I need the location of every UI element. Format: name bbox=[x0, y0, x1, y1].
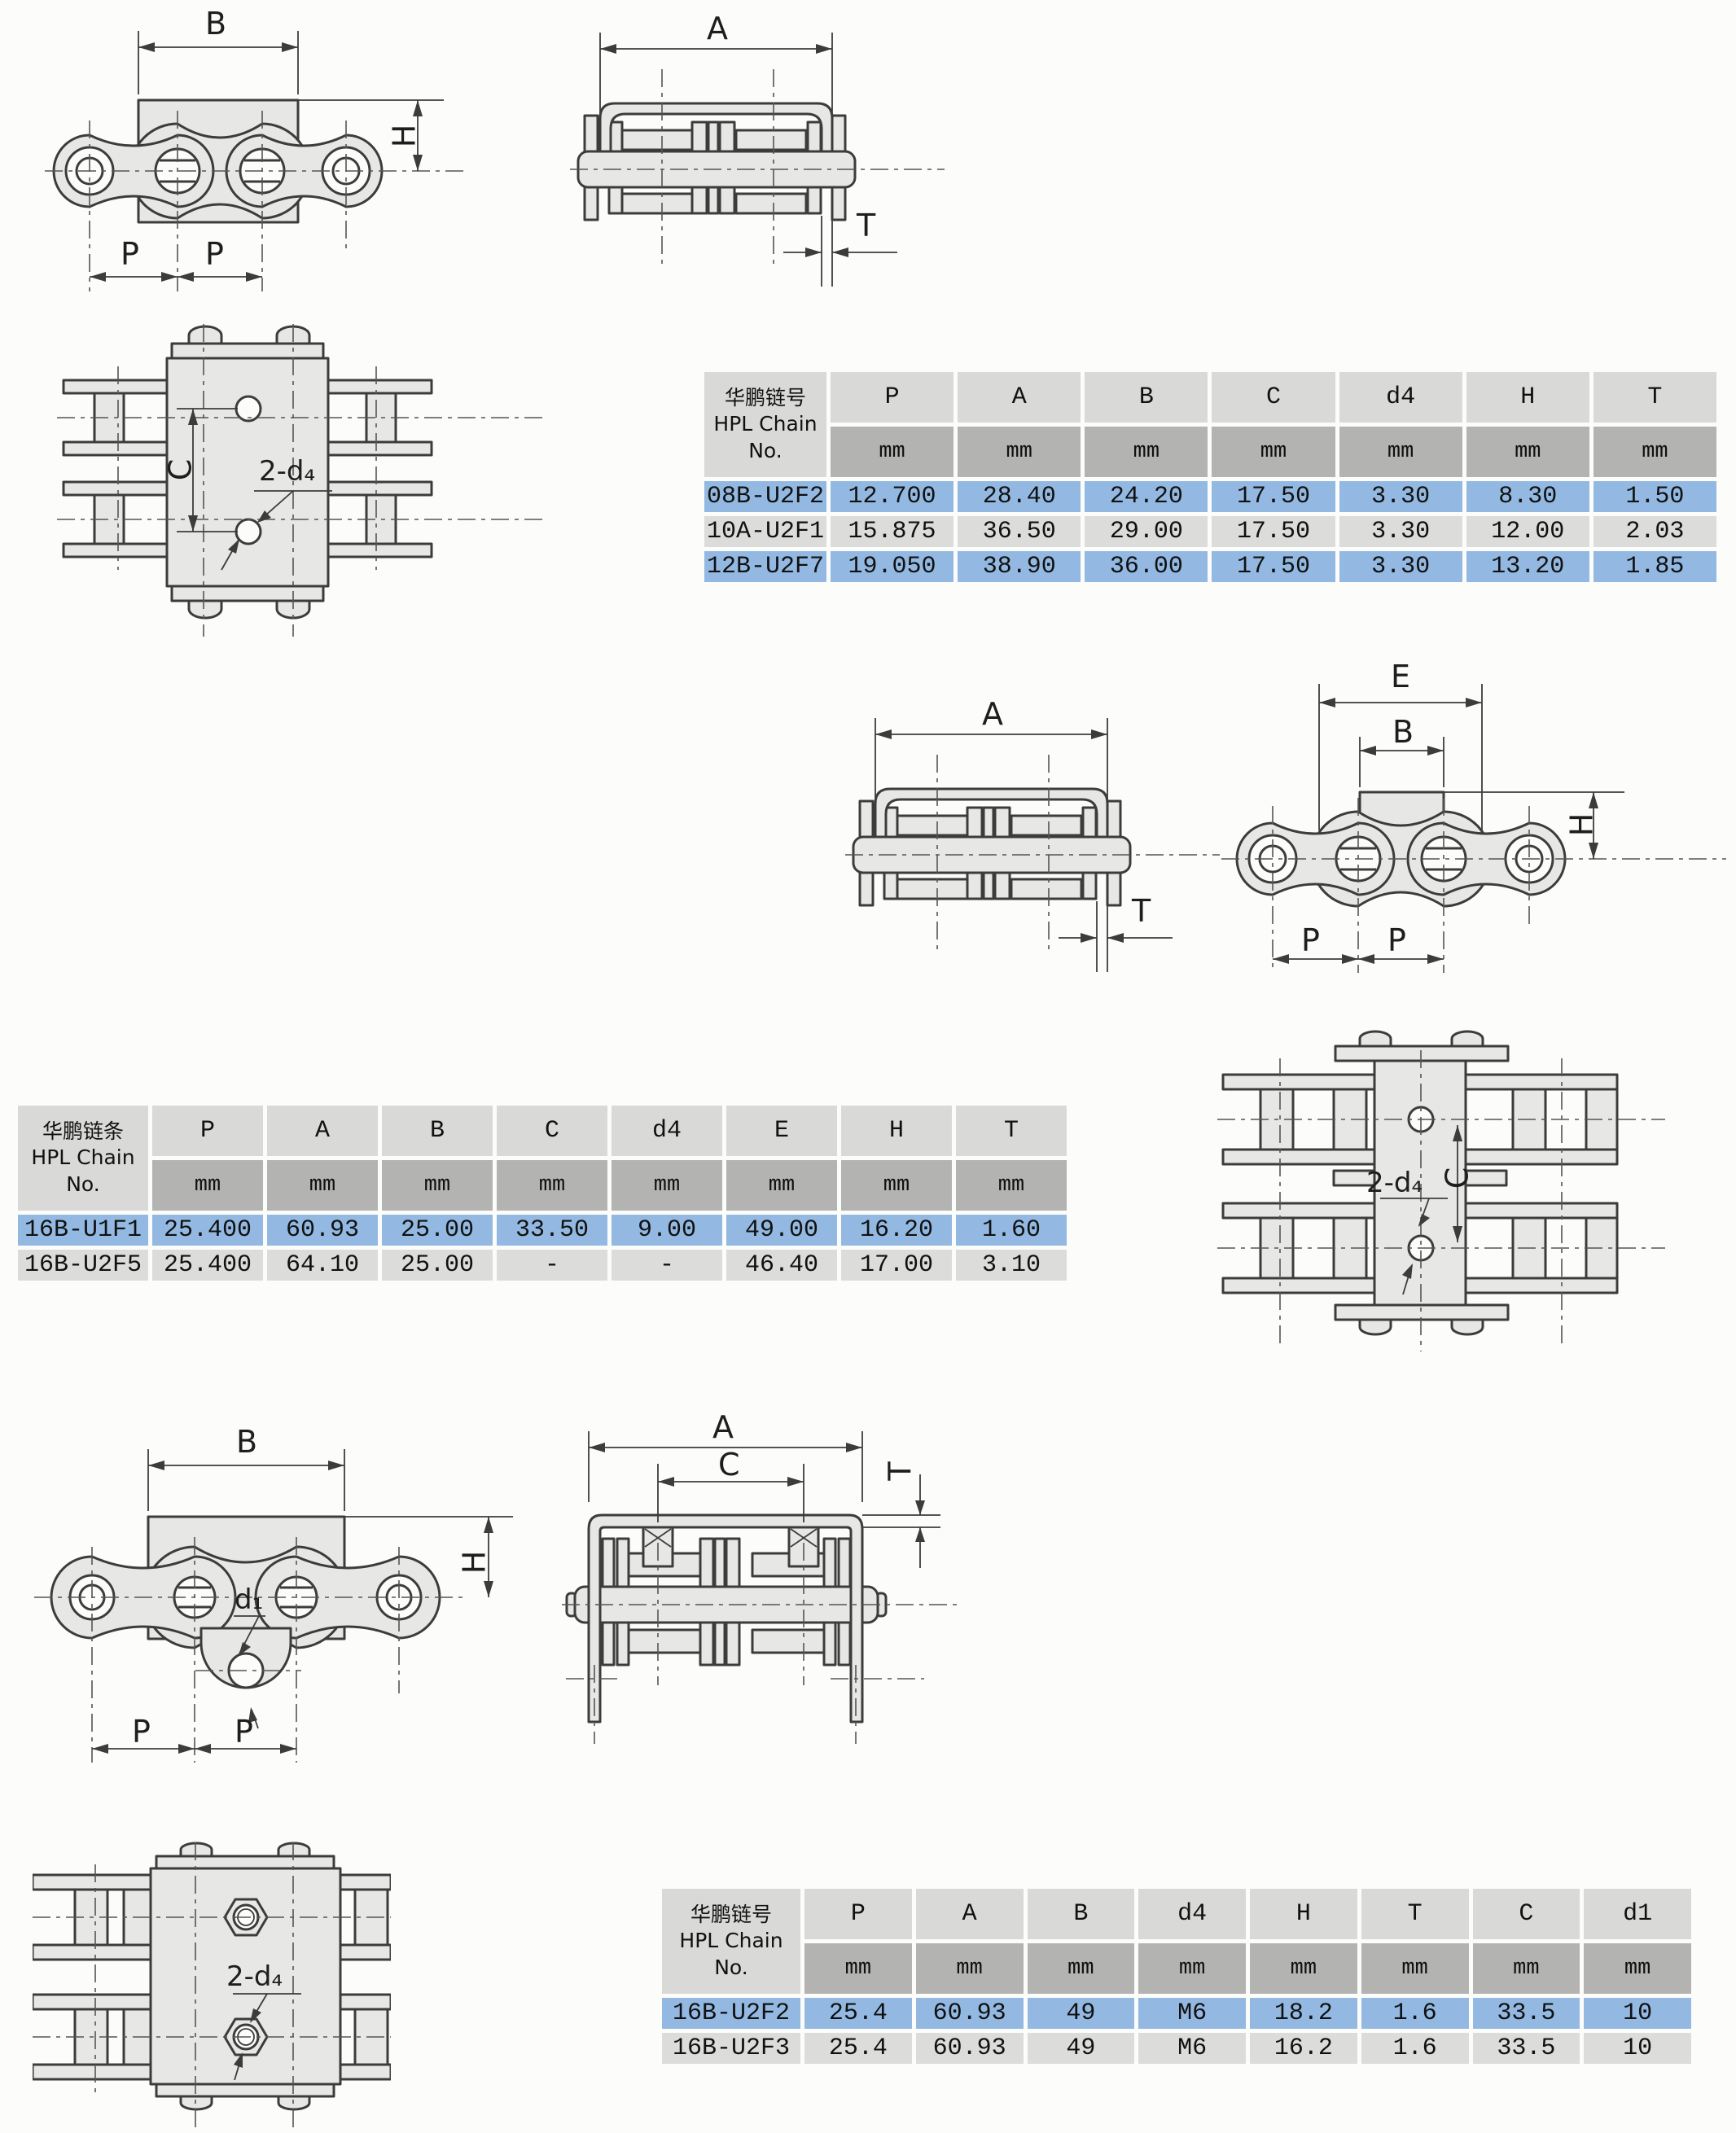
value-cell: 25.400 bbox=[152, 1215, 263, 1246]
unit-cell: mm bbox=[1085, 427, 1208, 477]
unit-cell: mm bbox=[1028, 1943, 1135, 1994]
column-header: d4 bbox=[1339, 372, 1462, 423]
dim-label-p1: P bbox=[1301, 925, 1320, 956]
dim-label-a: A bbox=[982, 699, 1003, 729]
value-cell: 17.00 bbox=[841, 1250, 952, 1281]
table-corner-header: 华鹏链号HPL ChainNo. bbox=[704, 372, 826, 477]
column-header: d4 bbox=[612, 1106, 722, 1156]
value-cell: 25.400 bbox=[152, 1250, 263, 1281]
chain-geometry bbox=[578, 103, 855, 220]
dim-label-2-d4: 2-d₄ bbox=[1366, 1169, 1423, 1197]
corner-line: No. bbox=[18, 1172, 148, 1198]
unit-cell: mm bbox=[1212, 427, 1335, 477]
chain-no-cell: 16B-U2F5 bbox=[18, 1250, 148, 1281]
corner-line: HPL Chain bbox=[704, 411, 826, 438]
dim-label-p1: P bbox=[121, 239, 139, 269]
side-view-svg bbox=[24, 1425, 554, 1775]
value-cell: 9.00 bbox=[612, 1215, 722, 1246]
dim-label-t: T bbox=[885, 1461, 916, 1480]
value-cell: 12.700 bbox=[831, 481, 953, 512]
value-cell: 33.50 bbox=[497, 1215, 607, 1246]
column-header: C bbox=[497, 1106, 607, 1156]
table-row: 16B-U2F225.460.9349M618.21.633.510 bbox=[662, 1998, 1691, 2029]
column-header: C bbox=[1473, 1889, 1580, 1939]
value-cell: 36.50 bbox=[958, 516, 1081, 547]
value-cell: 33.5 bbox=[1473, 1998, 1580, 2029]
column-header: d4 bbox=[1138, 1889, 1246, 1939]
unit-cell: mm bbox=[1138, 1943, 1246, 1994]
value-cell: 33.5 bbox=[1473, 2033, 1580, 2064]
value-cell: 3.30 bbox=[1339, 516, 1462, 547]
dim-label-c: C bbox=[1441, 1167, 1472, 1189]
dim-label-h: H bbox=[1566, 813, 1597, 837]
column-header: E bbox=[726, 1106, 837, 1156]
chain-no-cell: 08B-U2F2 bbox=[704, 481, 826, 512]
value-cell: 64.10 bbox=[267, 1250, 378, 1281]
value-cell: 1.60 bbox=[956, 1215, 1067, 1246]
column-header: B bbox=[1085, 372, 1208, 423]
value-cell: 49 bbox=[1028, 1998, 1135, 2029]
value-cell: 60.93 bbox=[267, 1215, 378, 1246]
dim-label-2-d4: 2-d₄ bbox=[226, 1963, 283, 1991]
value-cell: 19.050 bbox=[831, 551, 953, 582]
dim-label-b: B bbox=[236, 1426, 257, 1457]
value-cell: 10 bbox=[1584, 2033, 1691, 2064]
value-cell: 3.30 bbox=[1339, 481, 1462, 512]
unit-cell: mm bbox=[1339, 427, 1462, 477]
side-view-svg bbox=[33, 8, 603, 326]
corner-line: No. bbox=[704, 438, 826, 465]
column-header: T bbox=[1361, 1889, 1469, 1939]
value-cell: 17.50 bbox=[1212, 516, 1335, 547]
chain-geometry bbox=[567, 1515, 886, 1722]
top-view-svg bbox=[33, 1836, 391, 2133]
corner-line: 华鹏链号 bbox=[662, 1902, 800, 1929]
dim-label-d1: d₁ bbox=[235, 1586, 263, 1614]
drawing-end-view-u1-attachment: A T bbox=[845, 694, 1260, 995]
spec-table-16b-u2f2: 华鹏链号HPL ChainNo.PABd4HTCd1mmmmmmmmmmmmmm… bbox=[658, 1885, 1695, 2068]
chain-no-cell: 12B-U2F7 bbox=[704, 551, 826, 582]
unit-cell: mm bbox=[956, 1160, 1067, 1211]
value-cell: 25.4 bbox=[804, 2033, 912, 2064]
value-cell: 60.93 bbox=[916, 2033, 1024, 2064]
column-header: A bbox=[267, 1106, 378, 1156]
drawing-top-view-duplex-nuts: 2-d₄ bbox=[33, 1836, 391, 2133]
column-header: P bbox=[804, 1889, 912, 1939]
chain-geometry bbox=[1237, 792, 1565, 906]
chain-no-cell: 16B-U2F3 bbox=[662, 2033, 800, 2064]
dim-label-e: E bbox=[1391, 661, 1410, 692]
column-header: A bbox=[916, 1889, 1024, 1939]
value-cell: 60.93 bbox=[916, 1998, 1024, 2029]
unit-cell: mm bbox=[1361, 1943, 1469, 1994]
value-cell: 2.03 bbox=[1594, 516, 1716, 547]
value-cell: 16.20 bbox=[841, 1215, 952, 1246]
unit-cell: mm bbox=[1250, 1943, 1357, 1994]
value-cell: 16.2 bbox=[1250, 2033, 1357, 2064]
chain-geometry bbox=[853, 789, 1130, 905]
value-cell: 17.50 bbox=[1212, 481, 1335, 512]
unit-cell: mm bbox=[1473, 1943, 1580, 1994]
table-row: 16B-U2F325.460.9349M616.21.633.510 bbox=[662, 2033, 1691, 2064]
column-header: B bbox=[1028, 1889, 1135, 1939]
unit-cell: mm bbox=[1594, 427, 1716, 477]
dim-label-h: H bbox=[458, 1551, 489, 1575]
unit-cell: mm bbox=[1466, 427, 1589, 477]
dim-label-p2: P bbox=[235, 1716, 253, 1747]
end-view-svg bbox=[562, 1408, 961, 1750]
unit-cell: mm bbox=[1584, 1943, 1691, 1994]
unit-cell: mm bbox=[804, 1943, 912, 1994]
dim-label-p2: P bbox=[1387, 925, 1406, 956]
table-corner-header: 华鹏链号HPL ChainNo. bbox=[662, 1889, 800, 1994]
unit-cell: mm bbox=[497, 1160, 607, 1211]
chain-geometry bbox=[54, 100, 382, 222]
dim-label-b: B bbox=[205, 8, 226, 39]
drawing-top-view-duplex-plate: C 2-d₄ bbox=[49, 318, 554, 643]
dim-label-2-d4: 2-d₄ bbox=[259, 458, 315, 485]
unit-cell: mm bbox=[382, 1160, 493, 1211]
end-view-svg bbox=[570, 8, 985, 309]
unit-cell: mm bbox=[152, 1160, 263, 1211]
dim-label-p1: P bbox=[132, 1716, 151, 1747]
column-header: C bbox=[1212, 372, 1335, 423]
value-cell: 15.875 bbox=[831, 516, 953, 547]
chain-geometry bbox=[33, 1843, 391, 2109]
value-cell: 36.00 bbox=[1085, 551, 1208, 582]
corner-line: 华鹏链号 bbox=[704, 385, 826, 412]
top-view-svg bbox=[1213, 1026, 1669, 1368]
value-cell: M6 bbox=[1138, 1998, 1246, 2029]
value-cell: 25.00 bbox=[382, 1215, 493, 1246]
value-cell: 46.40 bbox=[726, 1250, 837, 1281]
drawing-end-view-bolted-attachment: A C T bbox=[562, 1408, 961, 1750]
spec-table-08b-12b: 华鹏链号HPL ChainNo.PABCd4HTmmmmmmmmmmmmmm08… bbox=[700, 368, 1721, 586]
corner-line: HPL Chain bbox=[18, 1145, 148, 1172]
corner-line: 华鹏链条 bbox=[18, 1119, 148, 1145]
dim-label-p2: P bbox=[205, 239, 224, 269]
column-header: d1 bbox=[1584, 1889, 1691, 1939]
column-header: H bbox=[1250, 1889, 1357, 1939]
drawing-side-view-u1-attachment: E B H P P bbox=[1213, 659, 1734, 985]
table-row: 08B-U2F212.70028.4024.2017.503.308.301.5… bbox=[704, 481, 1716, 512]
unit-cell: mm bbox=[916, 1943, 1024, 1994]
table-row: 16B-U1F125.40060.9325.0033.509.0049.0016… bbox=[18, 1215, 1067, 1246]
unit-cell: mm bbox=[831, 427, 953, 477]
column-header: H bbox=[1466, 372, 1589, 423]
value-cell: 49.00 bbox=[726, 1215, 837, 1246]
value-cell: 17.50 bbox=[1212, 551, 1335, 582]
value-cell: M6 bbox=[1138, 2033, 1246, 2064]
column-header: B bbox=[382, 1106, 493, 1156]
dim-label-c: C bbox=[718, 1449, 740, 1480]
value-cell: - bbox=[497, 1250, 607, 1281]
value-cell: 38.90 bbox=[958, 551, 1081, 582]
value-cell: 25.4 bbox=[804, 1998, 912, 2029]
side-view-svg bbox=[1213, 659, 1734, 985]
value-cell: 13.20 bbox=[1466, 551, 1589, 582]
unit-cell: mm bbox=[841, 1160, 952, 1211]
column-header: P bbox=[152, 1106, 263, 1156]
value-cell: 8.30 bbox=[1466, 481, 1589, 512]
table-row: 16B-U2F525.40064.1025.00--46.4017.003.10 bbox=[18, 1250, 1067, 1281]
unit-cell: mm bbox=[612, 1160, 722, 1211]
value-cell: 24.20 bbox=[1085, 481, 1208, 512]
dimension-lines bbox=[589, 1431, 940, 1568]
end-view-svg bbox=[845, 694, 1260, 995]
drawing-side-view-u2-attachment: B H P P bbox=[33, 8, 603, 326]
dim-label-h: H bbox=[388, 125, 419, 148]
unit-cell: mm bbox=[726, 1160, 837, 1211]
value-cell: 3.30 bbox=[1339, 551, 1462, 582]
corner-line: HPL Chain bbox=[662, 1928, 800, 1955]
unit-cell: mm bbox=[958, 427, 1081, 477]
chain-no-cell: 10A-U2F1 bbox=[704, 516, 826, 547]
value-cell: 3.10 bbox=[956, 1250, 1067, 1281]
chain-no-cell: 16B-U1F1 bbox=[18, 1215, 148, 1246]
dim-label-a: A bbox=[712, 1412, 734, 1443]
corner-line: No. bbox=[662, 1955, 800, 1982]
value-cell: 1.6 bbox=[1361, 2033, 1469, 2064]
value-cell: 29.00 bbox=[1085, 516, 1208, 547]
drawing-top-view-duplex-plate-right: 2-d₄ C bbox=[1213, 1026, 1669, 1368]
spec-table-16b-u1f1: 华鹏链条HPL ChainNo.PABCd4EHTmmmmmmmmmmmmmmm… bbox=[14, 1102, 1071, 1285]
value-cell: 49 bbox=[1028, 2033, 1135, 2064]
chain-no-cell: 16B-U2F2 bbox=[662, 1998, 800, 2029]
column-header: T bbox=[956, 1106, 1067, 1156]
value-cell: 25.00 bbox=[382, 1250, 493, 1281]
value-cell: 28.40 bbox=[958, 481, 1081, 512]
drawing-end-view-u2-attachment: A T bbox=[570, 8, 985, 309]
column-header: A bbox=[958, 372, 1081, 423]
table-corner-header: 华鹏链条HPL ChainNo. bbox=[18, 1106, 148, 1211]
value-cell: 10 bbox=[1584, 1998, 1691, 2029]
table-row: 12B-U2F719.05038.9036.0017.503.3013.201.… bbox=[704, 551, 1716, 582]
column-header: H bbox=[841, 1106, 952, 1156]
table-row: 10A-U2F115.87536.5029.0017.503.3012.002.… bbox=[704, 516, 1716, 547]
catalog-page: B H P P bbox=[0, 0, 1736, 2133]
unit-cell: mm bbox=[267, 1160, 378, 1211]
dim-label-b: B bbox=[1392, 716, 1414, 747]
dim-label-c: C bbox=[164, 459, 195, 481]
dim-label-t: T bbox=[857, 210, 875, 241]
value-cell: 12.00 bbox=[1466, 516, 1589, 547]
drawing-side-view-lug-attachment: B H d₁ P P bbox=[24, 1425, 554, 1775]
value-cell: - bbox=[612, 1250, 722, 1281]
value-cell: 1.6 bbox=[1361, 1998, 1469, 2029]
dim-label-t: T bbox=[1132, 896, 1151, 926]
column-header: T bbox=[1594, 372, 1716, 423]
dim-label-a: A bbox=[707, 13, 728, 44]
value-cell: 18.2 bbox=[1250, 1998, 1357, 2029]
value-cell: 1.85 bbox=[1594, 551, 1716, 582]
column-header: P bbox=[831, 372, 953, 423]
value-cell: 1.50 bbox=[1594, 481, 1716, 512]
